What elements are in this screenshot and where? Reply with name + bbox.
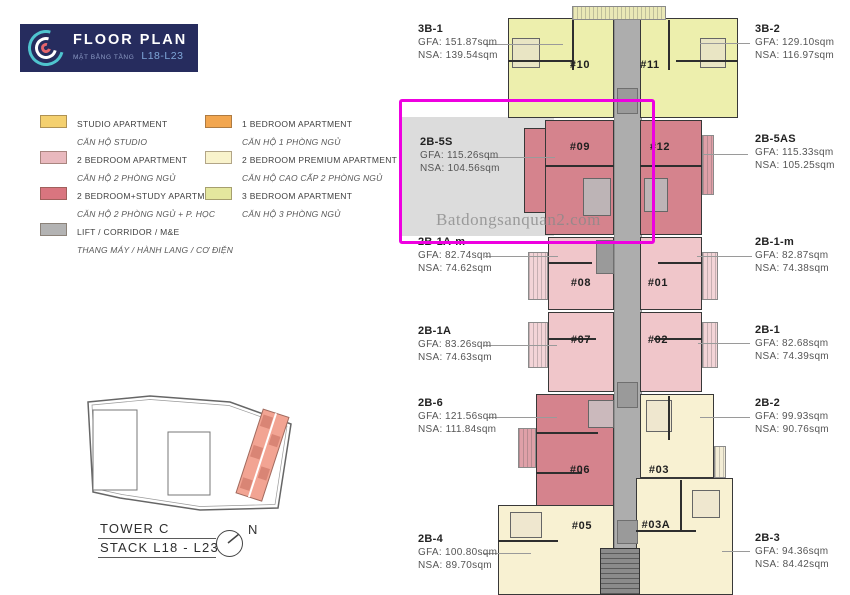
- unit-gfa: GFA: 115.33sqm: [755, 146, 835, 159]
- legend-name-vi: CĂN HỘ 3 PHÒNG NGỦ: [242, 209, 341, 219]
- wall-line: [545, 165, 614, 167]
- tower-stack-text: STACK L18 - L23: [98, 539, 216, 558]
- brand-logo-icon: [27, 29, 65, 67]
- legend-swatch: [40, 115, 67, 128]
- stair-core: [600, 548, 640, 595]
- unit-gfa: GFA: 82.74sqm: [418, 249, 492, 262]
- leader-line: [700, 417, 750, 418]
- wall-line: [498, 540, 558, 542]
- legend-name: 2 BEDROOM+STUDY APARTMENT: [77, 191, 223, 201]
- unit-label-2B-4: 2B-4 GFA: 100.80sqm NSA: 89.70sqm: [418, 533, 497, 572]
- legend-name-vi: CĂN HỘ 2 PHÒNG NGỦ: [77, 173, 176, 183]
- legend-name: 2 BEDROOM PREMIUM APARTMENT: [242, 155, 397, 165]
- wall-line: [508, 60, 572, 62]
- unit-code: 3B-2: [755, 23, 834, 36]
- watermark-text: Batdongsanquan2.com: [436, 210, 601, 230]
- unit-nsa: NSA: 90.76sqm: [755, 423, 829, 436]
- legend-name: 1 BEDROOM APARTMENT: [242, 119, 352, 129]
- unit-label-2B-5S: 2B-5S GFA: 115.26sqm NSA: 104.56sqm: [420, 136, 500, 175]
- unit-gfa: GFA: 94.36sqm: [755, 545, 829, 558]
- legend-swatch: [40, 187, 67, 200]
- balcony: [702, 252, 718, 300]
- unit-nsa: NSA: 139.54sqm: [418, 49, 498, 62]
- unit-code: 2B-3: [755, 532, 829, 545]
- lift-shaft: [617, 382, 638, 408]
- unit-label-2B-3: 2B-3 GFA: 94.36sqm NSA: 84.42sqm: [755, 532, 829, 571]
- leader-line: [703, 154, 748, 155]
- wall-line: [640, 165, 702, 167]
- unit-number: #06: [570, 464, 590, 476]
- wall-line: [668, 396, 670, 440]
- unit-code: 2B-4: [418, 533, 497, 546]
- unit-number: #08: [571, 277, 591, 289]
- unit-label-2B-2: 2B-2 GFA: 99.93sqm NSA: 90.76sqm: [755, 397, 829, 436]
- legend-swatch: [40, 223, 67, 236]
- page-title: FLOOR PLAN: [73, 33, 187, 49]
- unit-nsa: NSA: 116.97sqm: [755, 49, 834, 62]
- unit-block-02: [640, 312, 702, 392]
- unit-gfa: GFA: 100.80sqm: [418, 546, 497, 559]
- unit-nsa: NSA: 104.56sqm: [420, 162, 500, 175]
- legend-item-studio: STUDIO APARTMENT CĂN HỘ STUDIO: [40, 114, 167, 150]
- bathroom-box: [588, 400, 614, 428]
- legend-name-vi: THANG MÁY / HÀNH LANG / CƠ ĐIỆN: [77, 245, 233, 255]
- unit-block-09-wing: [524, 128, 546, 213]
- unit-label-2B-1-m: 2B-1-m GFA: 82.87sqm NSA: 74.38sqm: [755, 236, 829, 275]
- unit-code: 2B-5S: [420, 136, 500, 149]
- wall-line: [676, 60, 738, 62]
- bathroom-box: [692, 490, 720, 518]
- legend-name: LIFT / CORRIDOR / M&E: [77, 227, 180, 237]
- balcony: [528, 252, 548, 300]
- unit-gfa: GFA: 83.26sqm: [418, 338, 492, 351]
- unit-label-3B-2: 3B-2 GFA: 129.10sqm NSA: 116.97sqm: [755, 23, 834, 62]
- floor-plan-page: FLOOR PLAN MẶT BẰNG TẦNG L18-L23 STUDIO …: [0, 0, 850, 595]
- unit-number: #10: [570, 59, 590, 71]
- unit-code: 2B-1-m: [755, 236, 829, 249]
- unit-number: #01: [648, 277, 668, 289]
- unit-gfa: GFA: 82.87sqm: [755, 249, 829, 262]
- unit-number: #09: [570, 141, 590, 153]
- wall-line: [680, 480, 682, 530]
- leader-line: [487, 417, 557, 418]
- unit-label-2B-5AS: 2B-5AS GFA: 115.33sqm NSA: 105.25sqm: [755, 133, 835, 172]
- balcony: [702, 322, 718, 368]
- unit-number: #03A: [642, 519, 671, 531]
- legend-swatch: [205, 115, 232, 128]
- unit-number: #12: [650, 141, 670, 153]
- tower-caption: TOWER C STACK L18 - L23: [98, 520, 216, 558]
- unit-number: #02: [648, 334, 668, 346]
- bathroom-box: [512, 38, 540, 68]
- unit-number: #03: [649, 464, 669, 476]
- unit-code: 2B-2: [755, 397, 829, 410]
- lift-shaft: [596, 240, 614, 274]
- unit-nsa: NSA: 74.62sqm: [418, 262, 492, 275]
- unit-code: 2B-1A: [418, 325, 492, 338]
- unit-label-2B-1A-m: 2B-1A-m GFA: 82.74sqm NSA: 74.62sqm: [418, 236, 492, 275]
- wall-line: [658, 262, 702, 264]
- unit-nsa: NSA: 105.25sqm: [755, 159, 835, 172]
- unit-label-2B-6: 2B-6 GFA: 121.56sqm NSA: 111.84sqm: [418, 397, 497, 436]
- unit-number: #11: [640, 59, 660, 71]
- unit-nsa: NSA: 74.39sqm: [755, 350, 829, 363]
- unit-gfa: GFA: 151.87sqm: [418, 36, 498, 49]
- bathroom-box: [510, 512, 542, 538]
- legend-swatch: [205, 151, 232, 164]
- legend-name-vi: CĂN HỘ 1 PHÒNG NGỦ: [242, 137, 341, 147]
- legend-name-vi: CĂN HỘ 2 PHÒNG NGỦ + P. HỌC: [77, 209, 215, 219]
- unit-nsa: NSA: 111.84sqm: [418, 423, 497, 436]
- balcony: [702, 135, 714, 195]
- unit-block-07: [548, 312, 614, 392]
- wall-line: [548, 262, 592, 264]
- unit-code: 3B-1: [418, 23, 498, 36]
- balcony: [714, 446, 726, 478]
- unit-gfa: GFA: 115.26sqm: [420, 149, 500, 162]
- leader-line: [698, 343, 750, 344]
- legend-name-vi: CĂN HỘ CAO CẤP 2 PHÒNG NGỦ: [242, 173, 382, 183]
- unit-code: 2B-6: [418, 397, 497, 410]
- unit-block-01: [640, 237, 702, 310]
- wall-line: [536, 432, 598, 434]
- legend-swatch: [40, 151, 67, 164]
- legend-name-vi: CĂN HỘ STUDIO: [77, 137, 147, 147]
- legend-item-3br: 3 BEDROOM APARTMENT CĂN HỘ 3 PHÒNG NGỦ: [205, 186, 352, 222]
- legend-name: STUDIO APARTMENT: [77, 119, 167, 129]
- unit-label-2B-1A: 2B-1A GFA: 83.26sqm NSA: 74.63sqm: [418, 325, 492, 364]
- leader-line: [485, 256, 558, 257]
- unit-label-2B-1: 2B-1 GFA: 82.68sqm NSA: 74.39sqm: [755, 324, 829, 363]
- compass-north-label: N: [248, 522, 257, 537]
- unit-code: 2B-1: [755, 324, 829, 337]
- level-range: L18-L23: [141, 51, 183, 63]
- brand-header: FLOOR PLAN MẶT BẰNG TẦNG L18-L23: [20, 24, 198, 72]
- balcony: [572, 6, 666, 20]
- unit-nsa: NSA: 84.42sqm: [755, 558, 829, 571]
- unit-nsa: NSA: 74.38sqm: [755, 262, 829, 275]
- legend-item-2br-study: 2 BEDROOM+STUDY APARTMENT CĂN HỘ 2 PHÒNG…: [40, 186, 223, 222]
- lift-shaft: [617, 520, 638, 544]
- leader-line: [697, 256, 752, 257]
- tower-name-text: TOWER C: [98, 520, 216, 539]
- unit-gfa: GFA: 129.10sqm: [755, 36, 834, 49]
- leader-line: [483, 345, 557, 346]
- unit-label-3B-1: 3B-1 GFA: 151.87sqm NSA: 139.54sqm: [418, 23, 498, 62]
- leader-line: [722, 551, 750, 552]
- bathroom-box: [644, 178, 668, 212]
- brand-text: FLOOR PLAN MẶT BẰNG TẦNG L18-L23: [73, 33, 187, 62]
- unit-nsa: NSA: 74.63sqm: [418, 351, 492, 364]
- compass-icon: [216, 530, 243, 557]
- legend-item-2br-premium: 2 BEDROOM PREMIUM APARTMENT CĂN HỘ CAO C…: [205, 150, 397, 186]
- unit-nsa: NSA: 89.70sqm: [418, 559, 497, 572]
- legend-item-1br: 1 BEDROOM APARTMENT CĂN HỘ 1 PHÒNG NGỦ: [205, 114, 352, 150]
- unit-number: #05: [572, 520, 592, 532]
- unit-code: 2B-1A-m: [418, 236, 492, 249]
- site-locator-map: [70, 392, 310, 524]
- legend-swatch: [205, 187, 232, 200]
- legend-name: 3 BEDROOM APARTMENT: [242, 191, 352, 201]
- unit-number: #07: [571, 334, 591, 346]
- unit-gfa: GFA: 99.93sqm: [755, 410, 829, 423]
- page-subtitle-vi: MẶT BẰNG TẦNG: [73, 54, 134, 61]
- wall-line: [668, 20, 670, 70]
- lift-shaft: [617, 88, 638, 114]
- legend-name: 2 BEDROOM APARTMENT: [77, 155, 187, 165]
- unit-code: 2B-5AS: [755, 133, 835, 146]
- legend-item-2br: 2 BEDROOM APARTMENT CĂN HỘ 2 PHÒNG NGỦ: [40, 150, 187, 186]
- balcony: [518, 428, 536, 468]
- unit-block-10: [508, 18, 614, 118]
- legend-item-lift-corridor: LIFT / CORRIDOR / M&E THANG MÁY / HÀNH L…: [40, 222, 233, 258]
- leader-line: [700, 43, 750, 44]
- unit-gfa: GFA: 121.56sqm: [418, 410, 497, 423]
- unit-gfa: GFA: 82.68sqm: [755, 337, 829, 350]
